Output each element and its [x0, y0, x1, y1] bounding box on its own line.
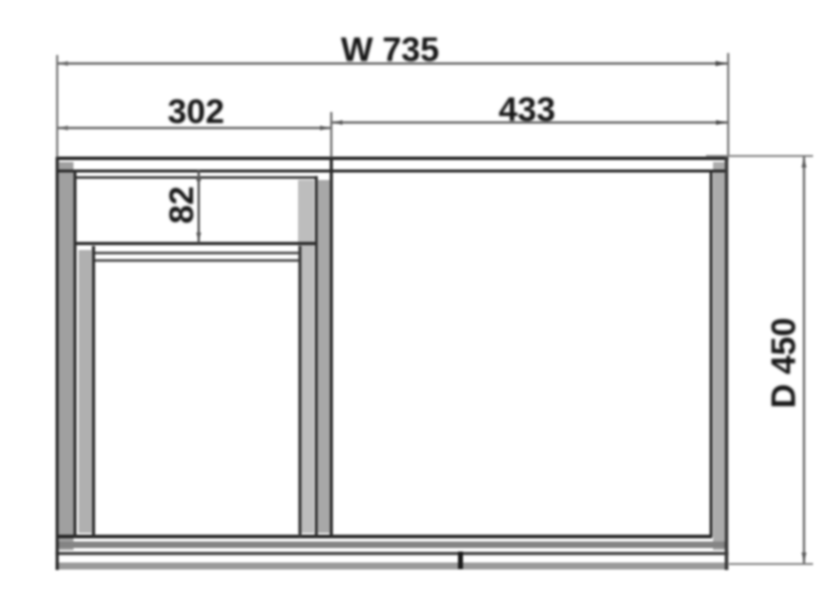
svg-text:82: 82: [163, 186, 201, 224]
svg-text:W 735: W 735: [341, 31, 439, 69]
svg-text:D 450: D 450: [765, 318, 803, 409]
svg-text:302: 302: [168, 93, 225, 131]
svg-text:433: 433: [499, 91, 556, 129]
